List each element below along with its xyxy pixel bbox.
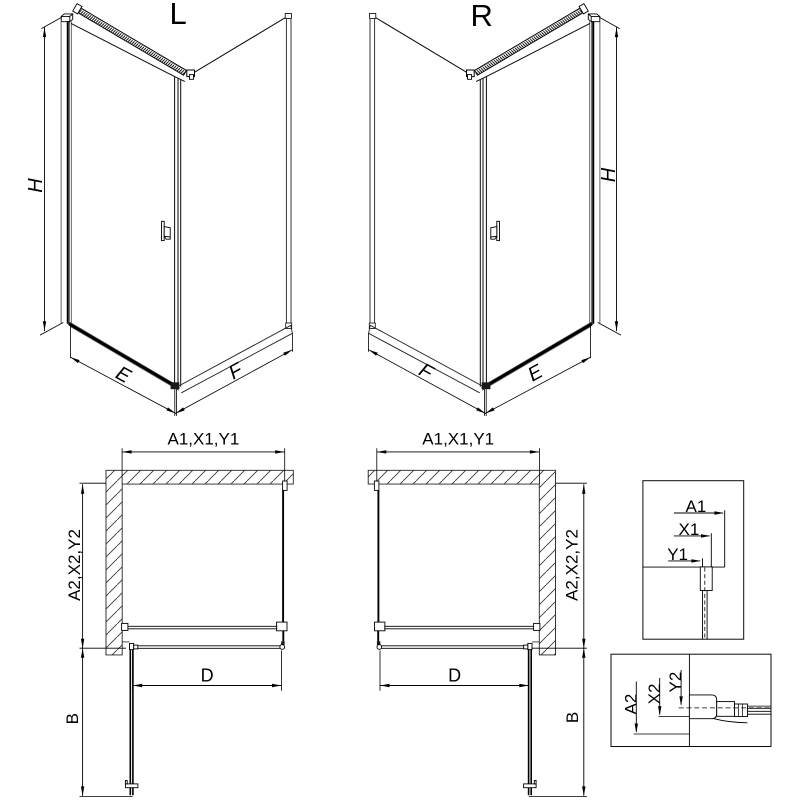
svg-text:B: B — [563, 712, 582, 723]
svg-text:X2: X2 — [645, 684, 664, 705]
svg-text:Y2: Y2 — [666, 672, 685, 693]
svg-text:A1: A1 — [686, 497, 707, 516]
svg-text:X1: X1 — [679, 520, 700, 539]
svg-text:L: L — [170, 0, 187, 31]
svg-text:H: H — [598, 167, 620, 182]
svg-text:R: R — [471, 0, 493, 33]
svg-text:Y1: Y1 — [667, 545, 688, 564]
svg-text:A1,X1,Y1: A1,X1,Y1 — [422, 430, 494, 449]
svg-text:A1,X1,Y1: A1,X1,Y1 — [167, 430, 239, 449]
svg-text:B: B — [63, 713, 82, 724]
svg-text:F: F — [415, 359, 438, 385]
svg-text:D: D — [448, 665, 461, 685]
svg-text:A2: A2 — [621, 694, 640, 715]
svg-text:A2,X2,Y2: A2,X2,Y2 — [65, 529, 84, 601]
svg-text:D: D — [201, 665, 214, 685]
svg-text:E: E — [112, 362, 135, 388]
svg-text:F: F — [225, 358, 248, 384]
svg-text:H: H — [25, 178, 47, 193]
svg-text:A2,X2,Y2: A2,X2,Y2 — [563, 529, 582, 601]
